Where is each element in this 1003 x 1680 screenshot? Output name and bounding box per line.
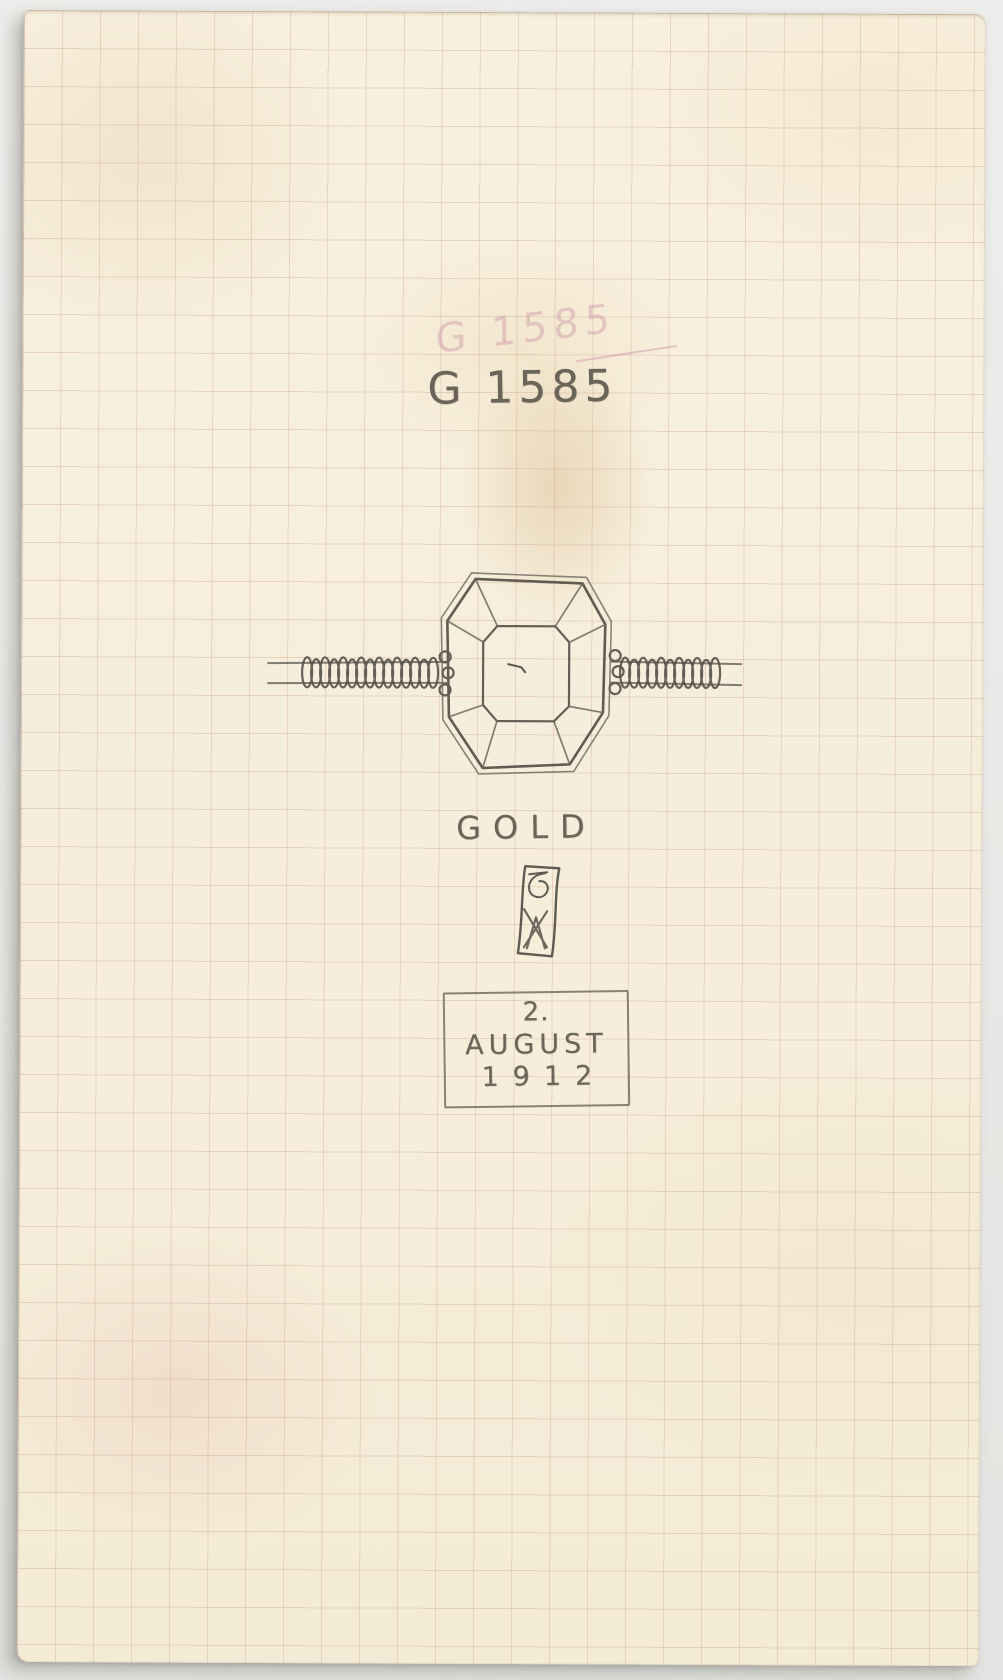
date-month: AUGUST bbox=[465, 1028, 608, 1061]
monogram-top-glyph bbox=[529, 872, 548, 897]
date-day: 2. bbox=[522, 997, 549, 1027]
facet-lines bbox=[447, 579, 606, 769]
material-label: GOLD bbox=[420, 807, 632, 848]
bracelet-sketch bbox=[254, 563, 755, 777]
scan-backdrop: G 1585 G 1585 bbox=[0, 0, 1003, 1680]
monogram-sketch bbox=[514, 861, 568, 959]
monogram-bottom-glyph bbox=[524, 909, 547, 948]
stone-table bbox=[483, 626, 569, 721]
connector-beads bbox=[440, 649, 624, 696]
stone-outline bbox=[447, 579, 606, 769]
date-stamp-box: 2. AUGUST 1912 bbox=[443, 990, 631, 1108]
table-tick bbox=[508, 664, 525, 672]
graph-paper-sheet: G 1585 G 1585 bbox=[17, 10, 986, 1666]
emerald-cut-stone bbox=[441, 573, 612, 775]
catalog-number: G 1585 bbox=[362, 360, 683, 416]
date-year: 1912 bbox=[467, 1060, 606, 1093]
ghost-catalog-number: G 1585 bbox=[435, 284, 714, 363]
